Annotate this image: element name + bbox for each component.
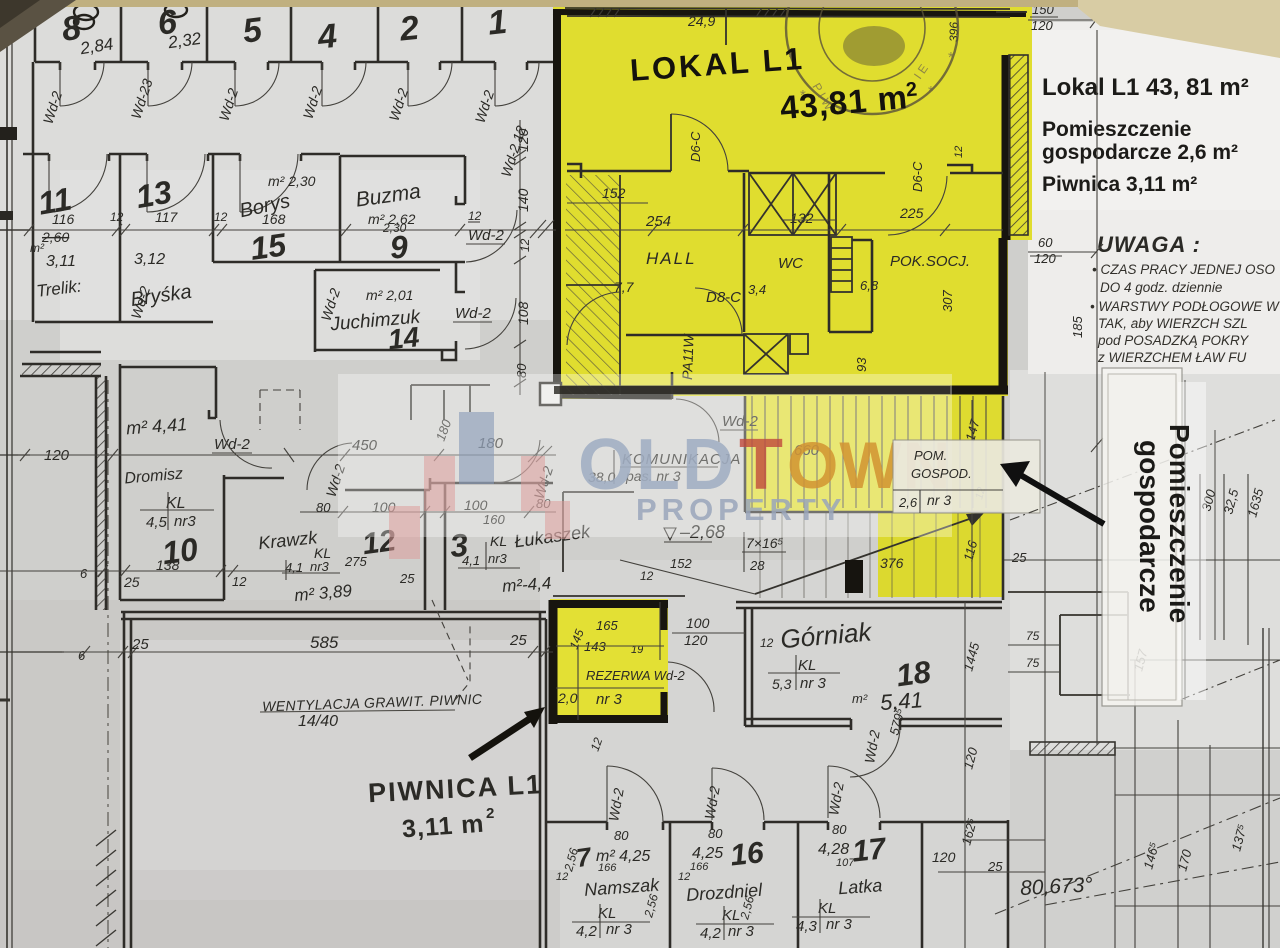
svg-text:nr 3: nr 3 [606, 921, 633, 938]
svg-text:nr 3: nr 3 [728, 923, 755, 940]
svg-text:75: 75 [1026, 629, 1040, 643]
svg-text:nr3: nr3 [488, 551, 508, 566]
svg-text:KL: KL [598, 905, 616, 922]
svg-text:Piwnica 3,11 m²: Piwnica 3,11 m² [1042, 173, 1197, 196]
svg-text:m² 2,01: m² 2,01 [366, 287, 413, 303]
svg-text:nr 3: nr 3 [800, 675, 827, 692]
svg-text:z WIERZCHEM ŁAW FU: z WIERZCHEM ŁAW FU [1097, 350, 1247, 365]
svg-text:376: 376 [880, 555, 904, 571]
svg-text:*: * [928, 83, 934, 100]
svg-text:2: 2 [905, 78, 918, 101]
svg-text:Pomieszczenie: Pomieszczenie [1164, 424, 1195, 623]
svg-text:KL: KL [798, 657, 816, 674]
svg-text:13: 13 [133, 173, 175, 215]
svg-text:4,2: 4,2 [700, 925, 722, 942]
svg-text:25: 25 [123, 574, 140, 590]
svg-text:152: 152 [602, 185, 626, 201]
svg-text:6: 6 [78, 648, 86, 663]
svg-text:108: 108 [515, 301, 531, 325]
svg-text:1: 1 [486, 3, 509, 43]
svg-text:185: 185 [1070, 316, 1085, 338]
svg-text:D8-C: D8-C [706, 289, 741, 306]
svg-text:18: 18 [894, 654, 934, 694]
svg-text:132: 132 [790, 210, 814, 226]
svg-text:12: 12 [518, 238, 532, 252]
svg-text:4,3: 4,3 [796, 918, 818, 935]
svg-text:4,25: 4,25 [692, 845, 723, 862]
svg-text:28: 28 [749, 558, 765, 573]
svg-text:Wd-2: Wd-2 [468, 227, 504, 244]
svg-text:2,6: 2,6 [898, 495, 918, 510]
svg-text:nr3: nr3 [310, 559, 330, 574]
svg-text:*: * [948, 49, 954, 66]
svg-text:80: 80 [708, 826, 723, 841]
svg-text:WC: WC [778, 255, 803, 272]
svg-text:nr3: nr3 [174, 513, 196, 530]
svg-text:80: 80 [316, 500, 331, 515]
svg-text:2,30: 2,30 [382, 221, 407, 235]
svg-text:REZERWA Wd-2: REZERWA Wd-2 [586, 668, 685, 683]
svg-text:120: 120 [515, 128, 531, 152]
svg-text:4,2: 4,2 [576, 923, 598, 940]
svg-text:120: 120 [1031, 18, 1053, 33]
svg-text:140: 140 [515, 188, 531, 212]
svg-text:6: 6 [80, 566, 88, 581]
svg-text:12: 12 [760, 636, 774, 650]
svg-text:m² 2,30: m² 2,30 [268, 173, 316, 189]
svg-text:120: 120 [684, 632, 708, 648]
svg-text:4,5: 4,5 [146, 514, 168, 531]
svg-text:D6-C: D6-C [688, 131, 703, 162]
svg-text:4: 4 [315, 17, 339, 57]
svg-text:93: 93 [854, 357, 869, 372]
svg-text:6,8: 6,8 [860, 278, 879, 293]
svg-text:POM.: POM. [914, 448, 947, 463]
svg-text:12: 12 [556, 871, 568, 883]
svg-text:25: 25 [131, 636, 149, 653]
svg-text:16: 16 [729, 836, 766, 872]
svg-text:3,12: 3,12 [134, 251, 165, 268]
svg-text:2: 2 [397, 9, 421, 49]
svg-text:80: 80 [614, 828, 629, 843]
svg-text:UWAGA :: UWAGA : [1097, 232, 1201, 257]
svg-text:HALL: HALL [646, 249, 697, 268]
svg-text:25: 25 [509, 632, 527, 649]
svg-text:PA11W: PA11W [679, 332, 697, 380]
svg-text:• CZAS PRACY JEDNEJ OSO: • CZAS PRACY JEDNEJ OSO [1092, 262, 1276, 277]
svg-text:3,4: 3,4 [748, 282, 766, 297]
svg-text:11: 11 [35, 180, 74, 221]
svg-text:120: 120 [932, 849, 956, 865]
svg-text:gospodarcze: gospodarcze [1134, 440, 1165, 613]
svg-text:2: 2 [486, 805, 494, 822]
svg-text:25: 25 [399, 571, 415, 586]
svg-text:m²-4,4: m²-4,4 [502, 574, 552, 596]
svg-text:m² 4,41: m² 4,41 [125, 414, 187, 438]
svg-text:7,7: 7,7 [614, 279, 635, 295]
svg-text:25: 25 [1011, 550, 1027, 565]
svg-text:KL: KL [818, 900, 836, 917]
svg-text:gospodarcze 2,6 m²: gospodarcze 2,6 m² [1042, 141, 1238, 164]
svg-text:Wd-2: Wd-2 [455, 305, 491, 322]
svg-text:GOSPOD.: GOSPOD. [911, 466, 972, 481]
svg-text:3,11: 3,11 [46, 253, 76, 270]
svg-text:2,60: 2,60 [41, 229, 69, 245]
svg-text:10: 10 [160, 531, 200, 572]
svg-text:nr 3: nr 3 [596, 691, 623, 708]
svg-text:pod POSADZKĄ POKRY: pod POSADZKĄ POKRY [1097, 333, 1249, 348]
svg-text:12: 12 [110, 210, 124, 224]
svg-text:120: 120 [1034, 251, 1056, 266]
svg-text:• WARSTWY PODŁOGOWE W: • WARSTWY PODŁOGOWE W [1090, 299, 1280, 314]
svg-text:DO 4 godz. dziennie: DO 4 godz. dziennie [1100, 280, 1222, 295]
svg-text:Latka: Latka [838, 875, 883, 898]
svg-text:nr 3: nr 3 [826, 916, 853, 933]
svg-text:152: 152 [670, 556, 692, 571]
svg-text:166: 166 [598, 862, 617, 874]
svg-text:80,673°: 80,673° [1020, 873, 1094, 900]
svg-text:m²: m² [852, 691, 868, 706]
svg-text:12: 12 [953, 146, 965, 158]
svg-text:3,11 m: 3,11 m [401, 810, 485, 844]
svg-text:12: 12 [214, 210, 228, 224]
svg-text:307: 307 [940, 290, 955, 312]
svg-text:80: 80 [832, 822, 847, 837]
svg-text:12: 12 [640, 569, 654, 583]
svg-text:60: 60 [1038, 235, 1053, 250]
svg-text:12: 12 [468, 209, 482, 223]
svg-text:165: 165 [596, 618, 618, 633]
svg-text:nr 3: nr 3 [927, 492, 951, 508]
svg-text:100: 100 [686, 615, 710, 631]
svg-text:2,0: 2,0 [557, 690, 578, 706]
svg-text:107: 107 [836, 857, 855, 869]
svg-text:5,3: 5,3 [772, 676, 792, 692]
svg-text:17: 17 [851, 832, 889, 868]
svg-text:166: 166 [690, 861, 709, 873]
svg-text:POK.SOCJ.: POK.SOCJ. [890, 253, 970, 270]
svg-text:4,28: 4,28 [818, 841, 849, 858]
svg-text:7×16⁵: 7×16⁵ [746, 535, 784, 551]
svg-text:Pomieszczenie: Pomieszczenie [1042, 118, 1191, 141]
svg-text:14/40: 14/40 [298, 713, 338, 730]
svg-text:Lokal L1 43, 81 m²: Lokal L1 43, 81 m² [1042, 74, 1249, 101]
svg-text:PROPERTY: PROPERTY [636, 492, 847, 527]
svg-text:75: 75 [1026, 656, 1040, 670]
svg-text:15: 15 [248, 226, 289, 267]
svg-text:12: 12 [232, 574, 247, 589]
svg-text:D6-C: D6-C [910, 161, 925, 192]
svg-text:25: 25 [987, 859, 1003, 874]
svg-text:24,9: 24,9 [687, 13, 715, 29]
svg-text:585: 585 [310, 633, 339, 652]
svg-text:12: 12 [678, 871, 690, 883]
svg-text:225: 225 [899, 205, 924, 221]
svg-text:TAK, aby WIERZCH SZL: TAK, aby WIERZCH SZL [1098, 316, 1248, 331]
svg-text:254: 254 [645, 213, 671, 230]
